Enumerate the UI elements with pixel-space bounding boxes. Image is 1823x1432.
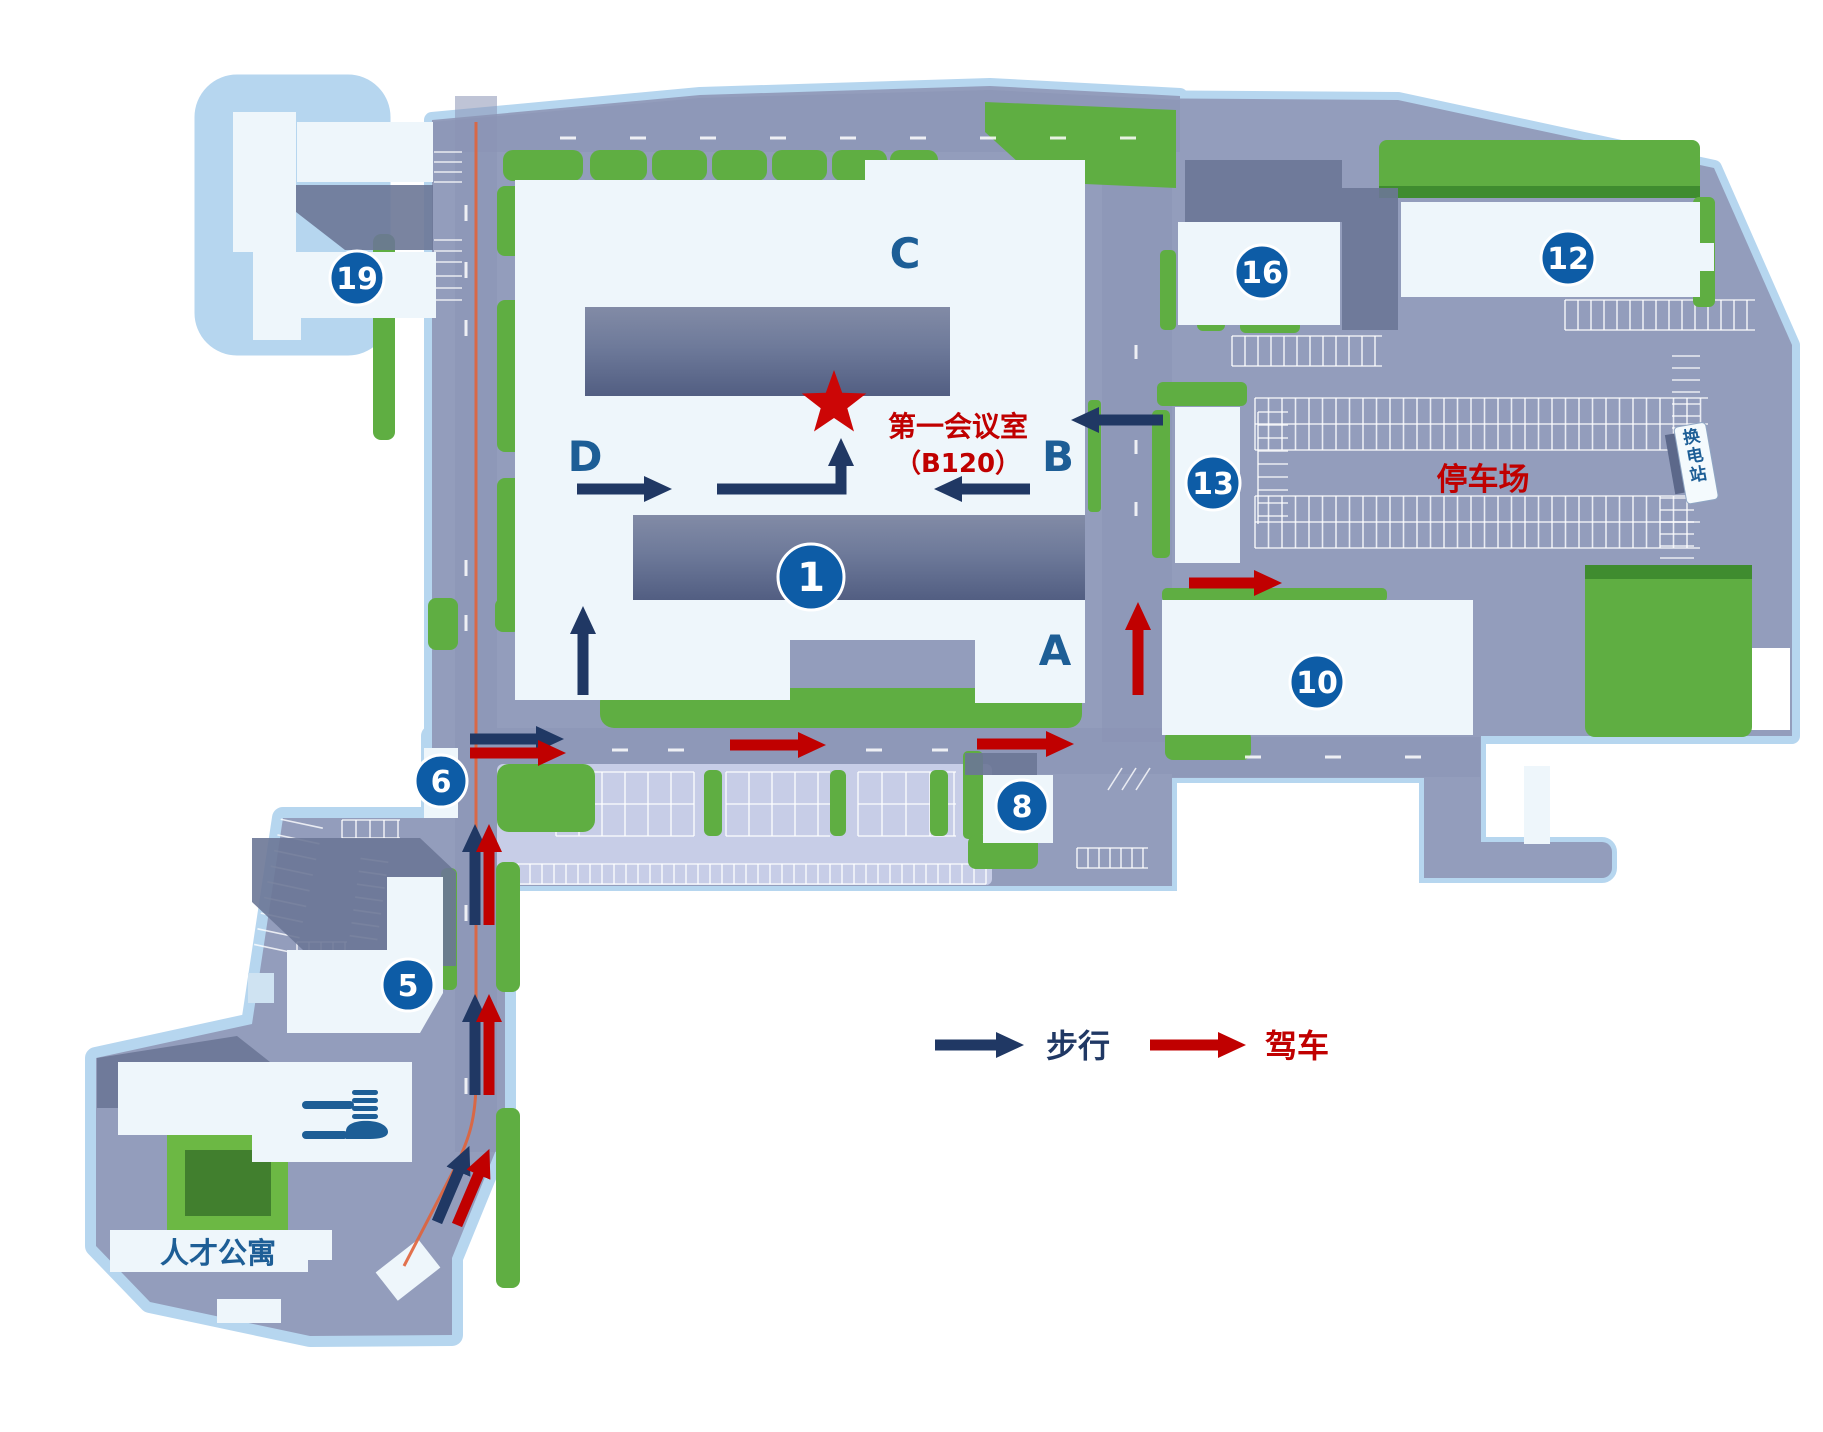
wing-label-a: A [1039, 626, 1072, 675]
restaurant-building [252, 1062, 412, 1162]
wing-label-c: C [890, 229, 921, 278]
svg-text:10: 10 [1296, 666, 1338, 701]
parking-lot-label: 停车场 [1437, 462, 1530, 498]
meeting-room-code-label: （B120） [895, 449, 1021, 479]
building1-courtyard-north [585, 307, 950, 396]
building-badge-16: 16 [1235, 245, 1289, 299]
svg-text:6: 6 [431, 765, 452, 800]
building-badge-19: 19 [330, 251, 384, 305]
building-badge-13: 13 [1186, 456, 1240, 510]
svg-text:19: 19 [336, 262, 378, 297]
legend-walk-label: 步行 [1046, 1027, 1110, 1065]
svg-text:12: 12 [1547, 242, 1589, 277]
building-badge-10: 10 [1290, 655, 1344, 709]
south-east-small-building [1524, 766, 1550, 844]
svg-text:13: 13 [1192, 467, 1234, 502]
ground-road-L-stub [1424, 842, 1612, 878]
svg-text:1: 1 [797, 555, 825, 601]
legend-drive-label: 驾车 [1265, 1027, 1329, 1065]
campus-map: 第一会议室 （B120） 停车场 换电站 C D B A 19 16 12 13… [0, 0, 1823, 1432]
building-badge-1: 1 [778, 544, 844, 610]
building-badge-6: 6 [415, 755, 467, 807]
building-12-annex [1700, 243, 1714, 271]
campus-map-svg: 第一会议室 （B120） 停车场 换电站 C D B A 19 16 12 13… [0, 0, 1823, 1432]
talent-apartment-label: 人才公寓 [160, 1236, 276, 1270]
svg-text:16: 16 [1241, 256, 1283, 291]
building1-courtyard-south [633, 515, 1085, 600]
svg-text:8: 8 [1012, 790, 1033, 825]
meeting-room-label: 第一会议室 [888, 410, 1028, 443]
legend: 步行 驾车 [935, 1027, 1329, 1065]
building-badge-8: 8 [996, 780, 1048, 832]
building-badge-5: 5 [382, 959, 434, 1011]
wing-label-d: D [568, 432, 603, 481]
svg-text:5: 5 [398, 969, 419, 1004]
east-lawn [1585, 565, 1752, 737]
wing-label-b: B [1042, 432, 1074, 481]
apartment-building-north [118, 1062, 252, 1135]
building-badge-12: 12 [1541, 231, 1595, 285]
